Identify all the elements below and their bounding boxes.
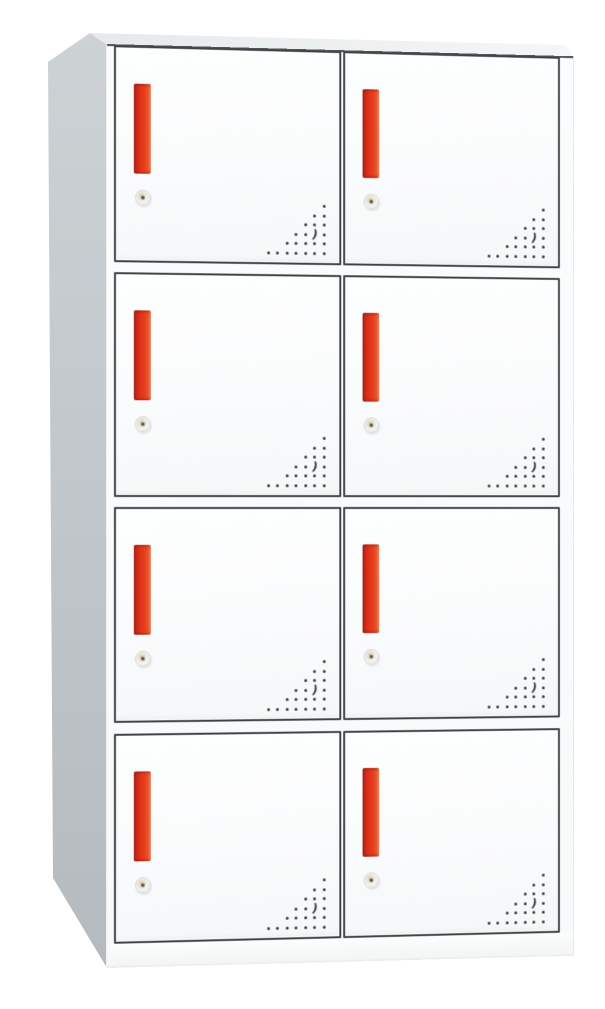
vent-dot	[319, 249, 328, 259]
vent-perforation: )	[264, 657, 329, 714]
vent-dot-hole	[322, 660, 325, 663]
vent-dot	[282, 914, 291, 924]
vent-dot	[301, 239, 310, 249]
door-lock	[135, 651, 151, 667]
vent-dot	[282, 695, 291, 705]
vent-dot-hole	[524, 484, 527, 487]
vent-dot-hole	[267, 927, 270, 930]
vent-dot-hole	[295, 689, 298, 692]
vent-dot	[539, 889, 548, 898]
vent-dot	[319, 202, 328, 212]
vent-dot-hole	[313, 475, 316, 478]
vent-dot-hole	[524, 696, 527, 699]
front-panel: ) ) ) ) )	[106, 44, 574, 968]
vent-dot-hole	[514, 921, 517, 924]
vent-dot	[292, 913, 301, 923]
vent-row	[539, 206, 548, 215]
door-handle	[363, 544, 379, 633]
vent-dot-hole	[542, 686, 545, 689]
vent-row	[484, 917, 547, 928]
vent-dot-hole	[322, 437, 325, 440]
vent-dot-hole	[505, 475, 508, 478]
vent-dot-hole	[496, 484, 499, 487]
vent-dot	[502, 472, 511, 481]
door-lock	[135, 416, 151, 432]
vent-dot-hole	[322, 907, 325, 910]
vent-dot-hole	[295, 465, 298, 468]
vent-dot-hole	[322, 707, 325, 710]
vent-dot	[502, 242, 511, 251]
vent-row	[310, 666, 328, 676]
vent-dot	[310, 667, 319, 676]
vent-dot-hole	[514, 484, 517, 487]
vent-dot	[484, 702, 493, 711]
vent-dot-hole	[542, 892, 545, 895]
vent-dot-hole	[524, 677, 527, 680]
vent-dot	[521, 908, 530, 917]
vent-dot	[301, 704, 310, 714]
vent-dot-hole	[304, 689, 307, 692]
vent-dot-hole	[533, 246, 536, 249]
vent-dot-hole	[524, 255, 527, 258]
vent-dot	[493, 918, 502, 928]
vent-dot	[493, 481, 502, 490]
vent-dot-hole	[542, 218, 545, 221]
vent-dot-hole	[322, 888, 325, 891]
vent-dot-hole	[505, 254, 508, 257]
vent-dot	[319, 903, 328, 913]
vent-dot	[319, 462, 328, 471]
door-handle	[134, 545, 151, 635]
vent-dot-hole	[542, 255, 545, 258]
door-r2-c1: )	[114, 272, 341, 497]
vent-dot-hole	[295, 707, 298, 710]
vent-dot	[319, 666, 328, 675]
vent-dot-hole	[524, 921, 527, 924]
vent-dot-hole	[533, 695, 536, 698]
vent-dot	[310, 443, 319, 452]
vent-dot-hole	[542, 466, 545, 469]
vent-row	[502, 692, 547, 702]
vent-row	[530, 215, 548, 225]
vent-dot-hole	[496, 921, 499, 924]
door-lock	[364, 649, 379, 665]
vent-dot-hole	[533, 484, 536, 487]
vent-dot-hole	[505, 912, 508, 915]
vent-dot	[511, 918, 520, 927]
vent-perforation: )	[484, 435, 547, 491]
vent-dot	[539, 664, 548, 673]
vent-dot-hole	[533, 705, 536, 708]
vent-dot	[539, 233, 548, 242]
vent-dot	[539, 683, 548, 692]
vent-dot	[301, 248, 310, 258]
vent-dot-hole	[313, 888, 316, 891]
vent-dot-hole	[322, 252, 325, 255]
vent-row	[310, 885, 328, 895]
vent-dot-hole	[285, 242, 288, 245]
vent-dot-hole	[295, 484, 298, 487]
keyhole	[369, 200, 373, 204]
vent-dot-hole	[285, 251, 288, 254]
vent-dot-hole	[542, 484, 545, 487]
vent-dot-hole	[304, 907, 307, 910]
door-handle	[134, 84, 151, 174]
vent-dot-hole	[322, 205, 325, 208]
vent-row	[310, 211, 328, 221]
vent-dot	[539, 243, 548, 252]
vent-dot-hole	[533, 475, 536, 478]
vent-dot	[539, 224, 548, 233]
vent-dot	[310, 481, 319, 490]
vent-dot	[264, 924, 273, 934]
vent-dot-hole	[487, 705, 490, 708]
door-r2-c2: )	[343, 275, 560, 497]
keyhole	[141, 422, 145, 426]
vent-dot-hole	[524, 475, 527, 478]
vent-dot-hole	[542, 677, 545, 680]
vent-dot	[521, 224, 530, 233]
vent-dot-hole	[295, 251, 298, 254]
vent-perforation: )	[264, 201, 329, 258]
vent-dot	[521, 890, 530, 899]
vent-dot	[292, 471, 301, 480]
vent-dot-hole	[276, 251, 279, 254]
vent-dot	[530, 215, 539, 224]
vent-dot-hole	[524, 466, 527, 469]
keyhole	[141, 883, 145, 887]
vent-dot	[273, 704, 282, 714]
door-lock	[364, 872, 379, 888]
door-handle	[363, 768, 379, 857]
vent-dot	[521, 453, 530, 462]
vent-dot-hole	[285, 917, 288, 920]
vent-dot	[493, 702, 502, 711]
vent-dot	[521, 674, 530, 683]
vent-dot	[319, 443, 328, 452]
vent-row	[539, 871, 548, 880]
door-r1-c1: )	[114, 45, 341, 265]
vent-row	[539, 655, 548, 664]
vent-dot	[539, 655, 548, 664]
vent-dot	[539, 463, 548, 472]
vent-dot-hole	[322, 484, 325, 487]
vent-dot-hole	[304, 707, 307, 710]
vent-dot-hole	[322, 916, 325, 919]
vent-perforation: )	[484, 871, 547, 928]
vent-dot-hole	[322, 897, 325, 900]
vent-row	[319, 657, 328, 666]
keyhole	[369, 423, 373, 427]
vent-dot	[539, 917, 548, 926]
keyhole	[369, 878, 373, 882]
vent-row: )	[511, 233, 547, 243]
keyhole	[141, 657, 145, 661]
vent-dot-hole	[524, 902, 527, 905]
vent-dot	[301, 453, 310, 462]
vent-dot	[511, 908, 520, 917]
vent-dot	[493, 251, 502, 260]
door-r3-c1: )	[114, 507, 341, 723]
vent-dot-hole	[542, 668, 545, 671]
vent-dot-hole	[533, 911, 536, 914]
vent-dot	[319, 434, 328, 443]
keyhole	[141, 196, 145, 200]
vent-dot	[292, 462, 301, 471]
vent-dot	[301, 695, 310, 704]
vent-dot	[539, 871, 548, 880]
vent-dot-hole	[487, 921, 490, 924]
vent-dot	[292, 685, 301, 694]
vent-dot-hole	[313, 484, 316, 487]
vent-dot	[521, 242, 530, 251]
vent-dot	[282, 481, 291, 490]
vent-dot	[310, 885, 319, 895]
vent-dot-hole	[285, 926, 288, 929]
vent-dot	[511, 693, 520, 702]
vent-row	[282, 471, 328, 480]
vent-dot-hole	[285, 474, 288, 477]
vent-row	[530, 664, 548, 673]
vent-dot	[539, 674, 548, 683]
door-handle	[363, 89, 379, 178]
vent-dot-hole	[542, 438, 545, 441]
vent-dot-hole	[322, 475, 325, 478]
vent-dot-hole	[533, 883, 536, 886]
vent-dot-hole	[313, 698, 316, 701]
vent-dot	[319, 657, 328, 666]
vent-row	[319, 875, 328, 885]
vent-row	[282, 695, 328, 705]
vent-dot	[319, 875, 328, 885]
vent-dot	[319, 211, 328, 221]
vent-dot-hole	[514, 475, 517, 478]
vent-dot	[530, 665, 539, 674]
vent-dot-hole	[304, 456, 307, 459]
vent-dot	[310, 249, 319, 259]
vent-dot	[282, 239, 291, 249]
vent-dot-hole	[304, 465, 307, 468]
vent-dot-hole	[313, 707, 316, 710]
vent-row	[310, 443, 328, 452]
vent-dot	[319, 676, 328, 685]
vent-dot-hole	[542, 658, 545, 661]
vent-dot-hole	[514, 696, 517, 699]
vent-dot-hole	[505, 696, 508, 699]
vent-dot-hole	[276, 926, 279, 929]
vent-dot-hole	[505, 245, 508, 248]
vent-crescent-highlight: )	[529, 462, 540, 473]
vent-crescent-highlight: )	[529, 232, 540, 243]
vent-dot	[273, 481, 282, 490]
vent-row	[484, 701, 547, 711]
vent-dot	[530, 880, 539, 889]
vent-dot-hole	[514, 466, 517, 469]
vent-dot-hole	[542, 920, 545, 923]
vent-dot	[292, 239, 301, 249]
vent-row	[264, 704, 329, 714]
vent-row: )	[292, 685, 329, 695]
vent-row: )	[292, 462, 329, 471]
door-lock	[364, 194, 379, 210]
door-handle	[363, 313, 379, 402]
vent-dot-hole	[542, 236, 545, 239]
vent-dot	[502, 918, 511, 928]
vent-dot-hole	[533, 218, 536, 221]
vent-dot	[539, 481, 548, 490]
vent-dot	[301, 894, 310, 904]
vent-dot-hole	[285, 708, 288, 711]
vent-dot	[539, 215, 548, 224]
vent-dot-hole	[533, 255, 536, 258]
vent-dot	[292, 704, 301, 714]
vent-dot-hole	[304, 484, 307, 487]
vent-dot	[539, 444, 548, 453]
vent-dot	[273, 923, 282, 933]
vent-dot	[539, 898, 548, 907]
vent-dot-hole	[514, 255, 517, 258]
vent-dot-hole	[313, 916, 316, 919]
vent-dot-hole	[313, 670, 316, 673]
vent-dot-hole	[295, 926, 298, 929]
vent-row	[319, 202, 328, 212]
vent-dot-hole	[267, 251, 270, 254]
vent-dot-hole	[267, 484, 270, 487]
vent-dot-hole	[505, 921, 508, 924]
vent-dot-hole	[505, 705, 508, 708]
vent-dot-hole	[524, 911, 527, 914]
vent-dot	[319, 885, 328, 895]
vent-dot-hole	[542, 902, 545, 905]
vent-dot-hole	[304, 916, 307, 919]
vent-dot	[539, 692, 548, 701]
vent-dot	[502, 481, 511, 490]
vent-dot	[301, 471, 310, 480]
vent-dot-hole	[514, 705, 517, 708]
vent-dot-hole	[304, 926, 307, 929]
vent-dot	[484, 251, 493, 260]
vent-dot-hole	[295, 242, 298, 245]
vent-dot-hole	[524, 705, 527, 708]
door-r3-c2: )	[343, 507, 560, 720]
vent-dot	[310, 922, 319, 932]
vent-dot-hole	[533, 668, 536, 671]
vent-row: )	[511, 463, 547, 472]
vent-dot	[521, 702, 530, 711]
vent-dot-hole	[542, 475, 545, 478]
vent-dot	[511, 481, 520, 490]
vent-dot-hole	[514, 236, 517, 239]
vent-dot	[264, 248, 273, 258]
vent-row	[484, 251, 547, 261]
vent-dot	[521, 692, 530, 701]
vent-dot-hole	[304, 223, 307, 226]
vent-dot-hole	[322, 688, 325, 691]
door-handle	[134, 310, 151, 400]
vent-dot	[319, 894, 328, 904]
vent-dot	[319, 704, 328, 713]
vent-dot	[511, 899, 520, 908]
vent-dot-hole	[313, 446, 316, 449]
vent-dot	[282, 923, 291, 933]
vent-dot-hole	[514, 911, 517, 914]
vent-dot-hole	[322, 698, 325, 701]
vent-dot-hole	[322, 465, 325, 468]
vent-dot-hole	[322, 679, 325, 682]
vent-dot-hole	[322, 456, 325, 459]
vent-dot	[319, 922, 328, 932]
vent-row	[264, 248, 329, 258]
vent-dot-hole	[304, 242, 307, 245]
vent-dot	[301, 481, 310, 490]
vent-dot	[539, 252, 548, 261]
vent-dot	[539, 880, 548, 889]
vent-dot-hole	[542, 911, 545, 914]
side-panel	[48, 33, 107, 968]
vent-dot-hole	[304, 698, 307, 701]
vent-dot	[319, 695, 328, 704]
vent-row: )	[292, 229, 329, 239]
vent-perforation: )	[484, 655, 547, 711]
vent-dot	[319, 481, 328, 490]
vent-dot	[301, 676, 310, 685]
vent-dot-hole	[322, 233, 325, 236]
vent-dot-hole	[542, 246, 545, 249]
door-handle	[134, 771, 151, 861]
vent-row	[484, 481, 547, 490]
vent-dot-hole	[322, 670, 325, 673]
vent-dot-hole	[542, 456, 545, 459]
vent-dot-hole	[295, 233, 298, 236]
door-lock	[364, 417, 379, 433]
vent-dot-hole	[487, 254, 490, 257]
vent-dot	[539, 453, 548, 462]
vent-dot	[511, 472, 520, 481]
vent-dot-hole	[514, 245, 517, 248]
vent-dot-hole	[304, 475, 307, 478]
vent-dot-hole	[524, 893, 527, 896]
vent-dot	[319, 913, 328, 923]
vent-dot-hole	[524, 227, 527, 230]
vent-dot-hole	[322, 242, 325, 245]
vent-dot	[292, 229, 301, 239]
vent-dot	[319, 230, 328, 240]
vent-dot	[521, 252, 530, 261]
vent-dot	[511, 252, 520, 261]
vent-dot-hole	[542, 227, 545, 230]
vent-dot-hole	[322, 214, 325, 217]
vent-dot-hole	[524, 245, 527, 248]
vent-row	[319, 434, 328, 443]
vent-dot-hole	[295, 698, 298, 701]
vent-dot-hole	[313, 242, 316, 245]
vent-row	[264, 481, 329, 490]
vent-dot-hole	[542, 874, 545, 877]
vent-dot-hole	[285, 484, 288, 487]
vent-dot-hole	[285, 698, 288, 701]
vent-row	[264, 922, 329, 933]
vent-dot-hole	[514, 902, 517, 905]
vent-dot-hole	[524, 236, 527, 239]
keyhole	[369, 655, 373, 659]
vent-dot	[310, 704, 319, 713]
door-lock	[135, 190, 151, 206]
vent-dot	[530, 444, 539, 453]
vent-dot	[292, 923, 301, 933]
vent-dot	[511, 242, 520, 251]
door-r4-c1: )	[114, 731, 341, 944]
vent-dot	[521, 481, 530, 490]
